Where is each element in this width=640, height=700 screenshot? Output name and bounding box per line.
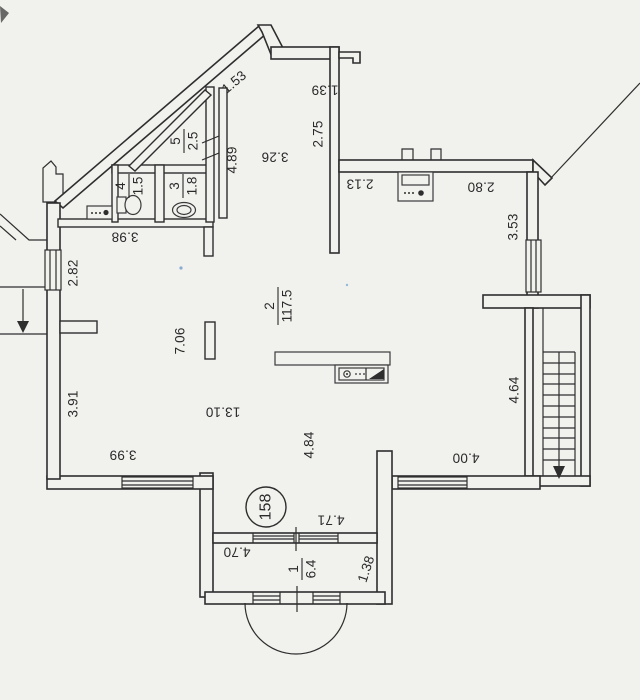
- staircase-outside: [0, 287, 47, 334]
- dim-3-98: 3.98: [111, 230, 138, 245]
- dim-3-53: 3.53: [506, 213, 521, 240]
- kitchen-sink-icon: [275, 352, 390, 383]
- apartment-number: 158: [258, 494, 275, 521]
- dim-3-99: 3.99: [109, 448, 136, 463]
- room-2-label: 2 117.5: [262, 287, 295, 325]
- room-area: 1.8: [185, 177, 200, 196]
- toilet-icon: [117, 196, 141, 215]
- dim-4-64: 4.64: [507, 376, 522, 403]
- dim-4-00: 4.00: [452, 451, 479, 466]
- stairs-down-arrow-icon: [17, 321, 29, 333]
- dim-4-89: 4.89: [225, 146, 240, 173]
- room-number: 5: [168, 137, 183, 145]
- room-area: 117.5: [280, 290, 295, 323]
- dim-3-26: 3.26: [261, 150, 288, 165]
- room-1-label: 1 6.4: [286, 558, 319, 580]
- wall-flag-stub: [339, 52, 360, 63]
- room-number: 2: [262, 302, 277, 310]
- room-number: 1: [286, 565, 301, 573]
- dim-7-06: 7.06: [173, 327, 188, 354]
- column: [205, 322, 215, 359]
- apartment-number-badge: 158: [246, 487, 286, 527]
- french-window-band: [253, 527, 338, 551]
- electrical-panel-icon: [87, 206, 112, 219]
- dim-2-82: 2.82: [66, 259, 81, 286]
- room-area: 2.5: [186, 132, 201, 151]
- stove-icon: [398, 172, 433, 201]
- vent-stubs: [402, 149, 441, 160]
- window-hatch: [398, 477, 467, 488]
- dim-1-39: 1.39: [311, 83, 338, 98]
- room-number: 3: [167, 182, 182, 190]
- staircase-right: [543, 308, 575, 479]
- dim-4-84: 4.84: [302, 431, 317, 458]
- dim-3-91: 3.91: [66, 390, 81, 417]
- bidet-icon: [173, 203, 196, 218]
- fixtures: [87, 172, 433, 383]
- dim-4-70: 4.70: [223, 545, 250, 560]
- room-area: 1.5: [131, 177, 146, 196]
- scanned-floor-plan-page: 1.53 1.39 2.75 3.26 4.89 2.13 2.80 3.53 …: [0, 0, 640, 700]
- room-number: 4: [113, 182, 128, 190]
- dim-4-71: 4.71: [317, 513, 344, 528]
- dim-2-75: 2.75: [311, 120, 326, 147]
- dim-13-10: 13.10: [206, 405, 241, 420]
- dim-1-38: 1.38: [355, 554, 378, 584]
- window-hatch: [122, 477, 193, 488]
- floor-plan-svg: 1.53 1.39 2.75 3.26 4.89 2.13 2.80 3.53 …: [0, 0, 640, 700]
- balcony-bay-arc: [245, 603, 347, 654]
- room-area: 6.4: [304, 559, 319, 578]
- room-3-label: 3 1.8: [167, 174, 200, 198]
- window-hatch: [526, 240, 541, 292]
- window-hatch: [45, 250, 61, 290]
- dim-2-13: 2.13: [346, 177, 373, 192]
- dim-2-80: 2.80: [467, 180, 494, 195]
